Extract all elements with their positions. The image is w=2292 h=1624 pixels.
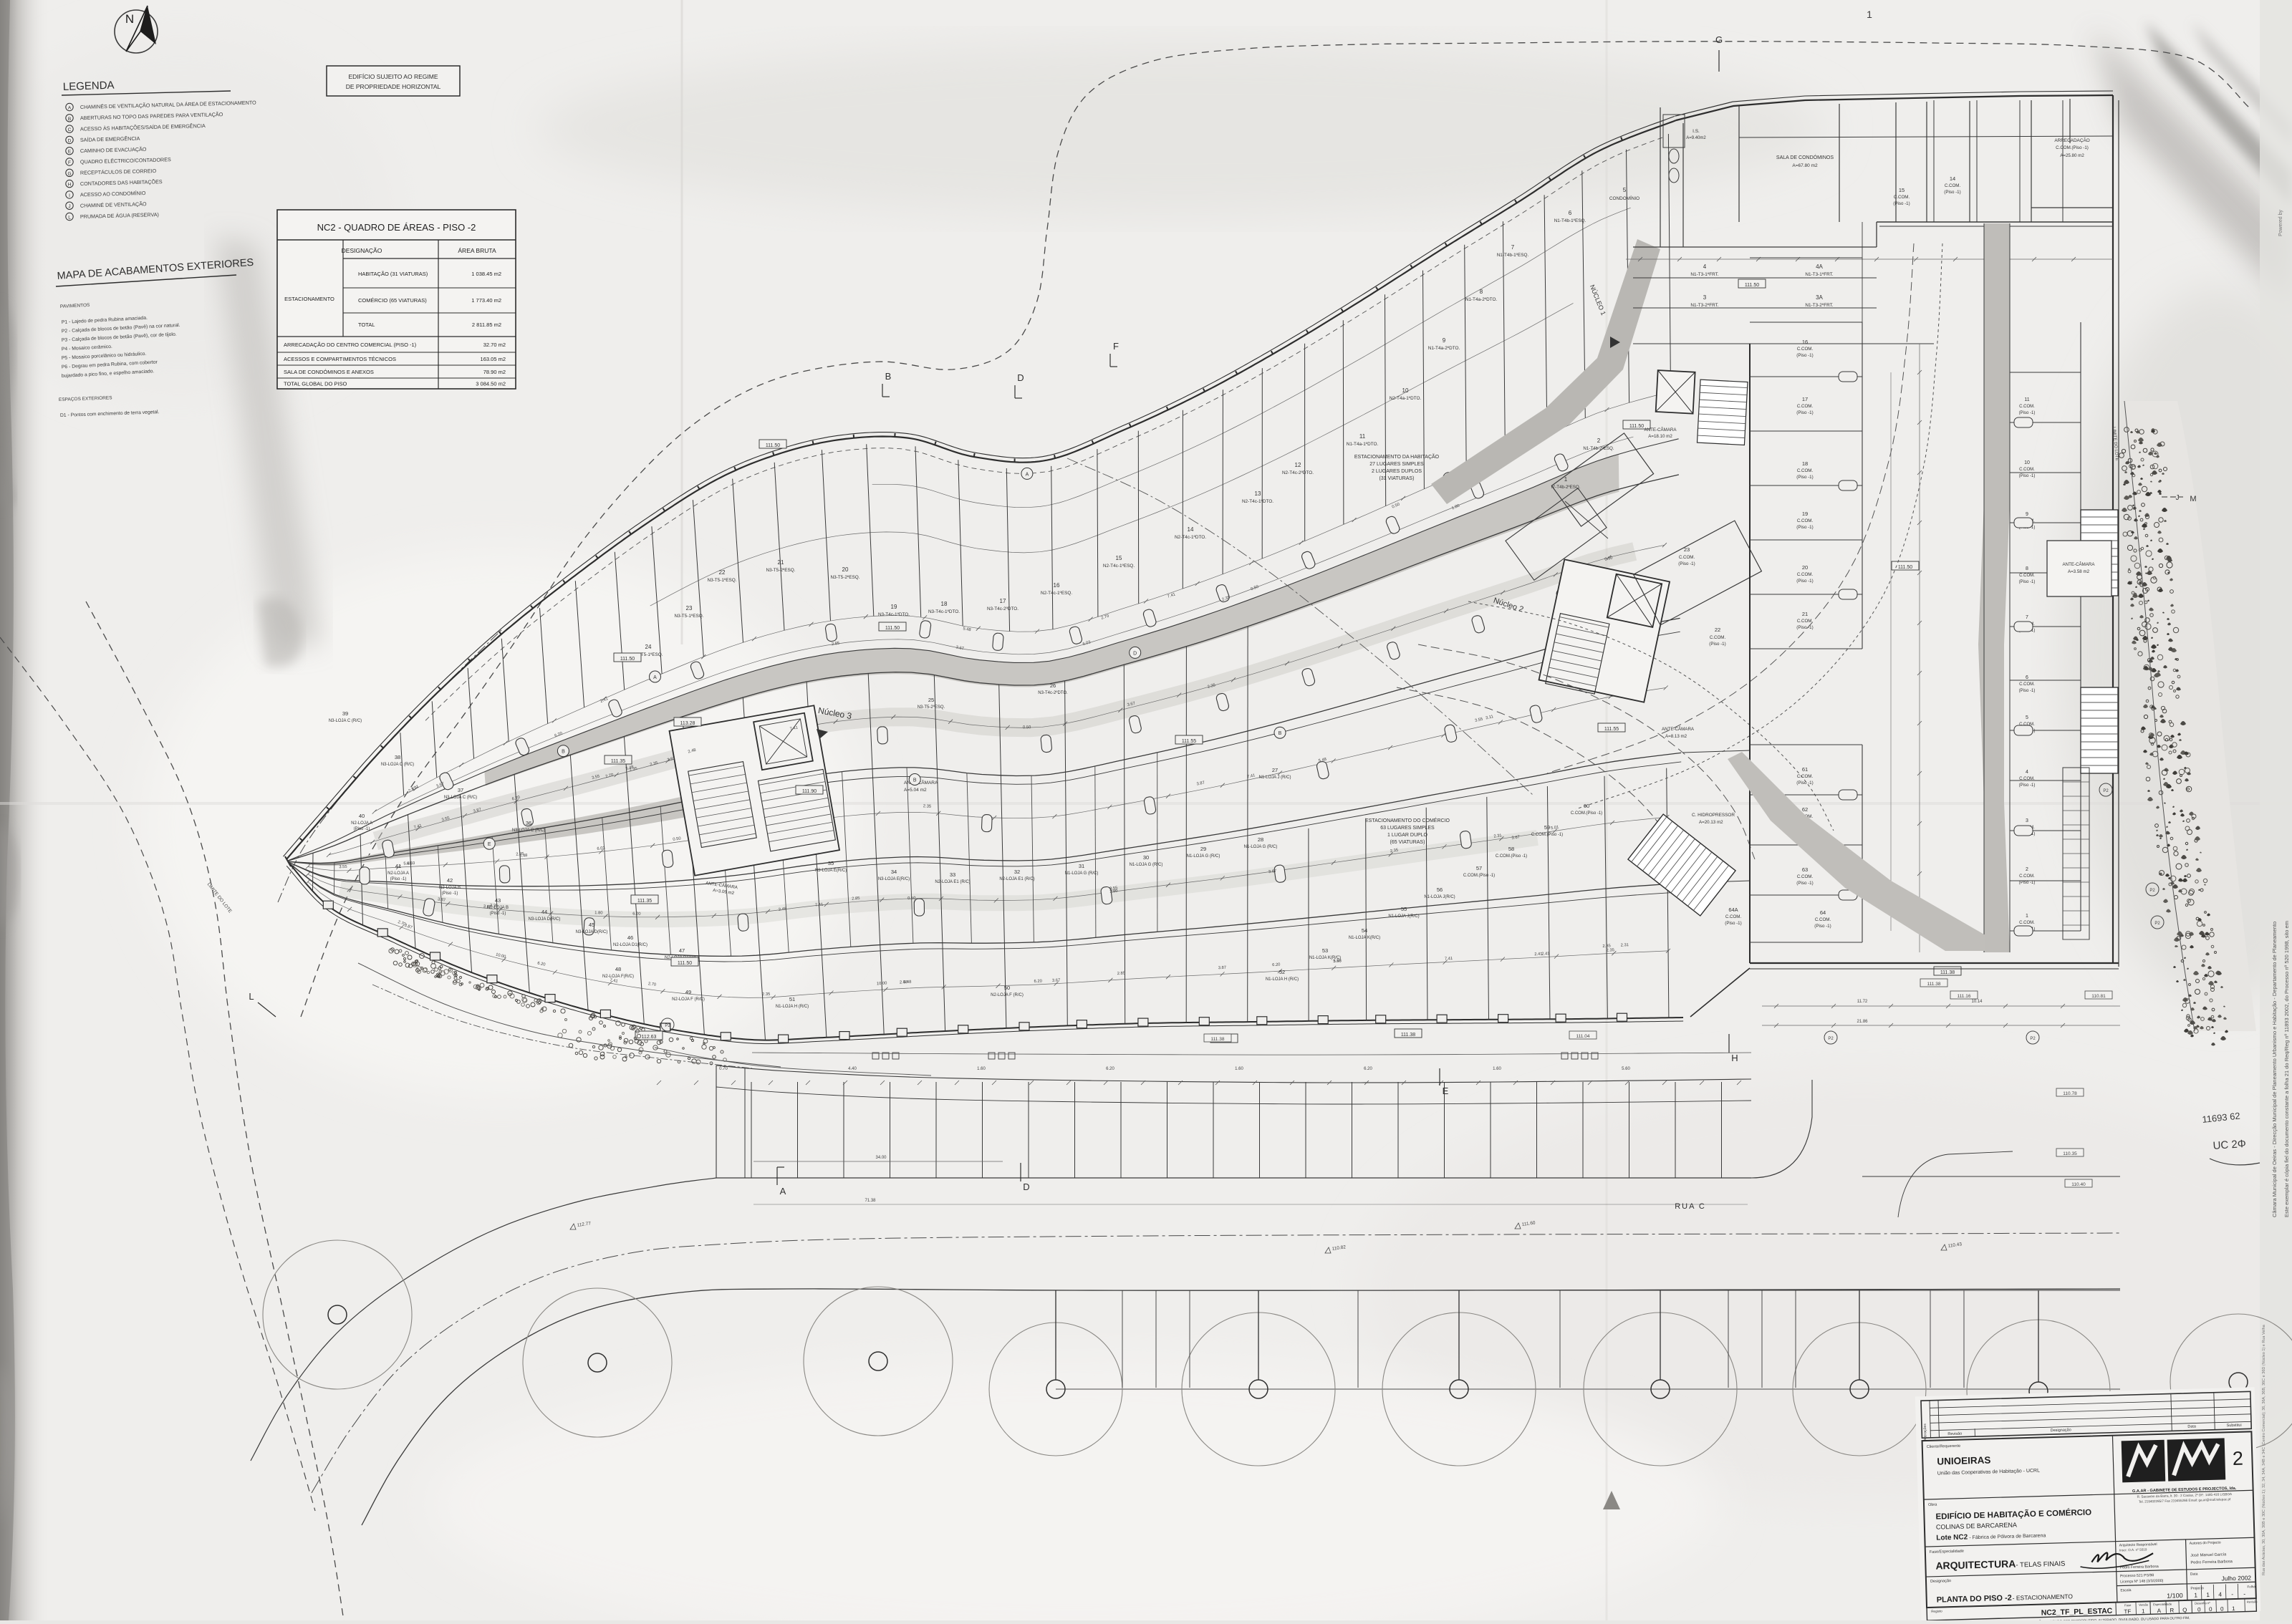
svg-text:A=3.58 m2: A=3.58 m2: [2068, 569, 2090, 574]
svg-text:B: B: [913, 778, 917, 783]
svg-text:6.20: 6.20: [632, 912, 640, 917]
svg-text:111.50: 111.50: [1629, 424, 1644, 429]
svg-text:111.38: 111.38: [1940, 970, 1955, 975]
svg-text:6.20: 6.20: [1272, 962, 1281, 967]
svg-text:B: B: [885, 371, 892, 382]
svg-text:6.20: 6.20: [1106, 1067, 1114, 1071]
svg-text:8: 8: [2026, 566, 2028, 571]
svg-text:111.04: 111.04: [1576, 1034, 1590, 1039]
svg-text:N2-T4c-2ºDTO.: N2-T4c-2ºDTO.: [1282, 470, 1314, 475]
svg-text:N3-LOJA E(R/C): N3-LOJA E(R/C): [878, 877, 910, 881]
svg-text:2.35: 2.35: [923, 804, 932, 809]
svg-text:4.40: 4.40: [848, 1067, 857, 1071]
svg-text:C: C: [68, 127, 72, 132]
svg-text:22: 22: [719, 569, 726, 576]
svg-text:L: L: [68, 216, 71, 221]
svg-text:111.16: 111.16: [1958, 994, 1971, 999]
svg-text:6.20: 6.20: [1364, 1067, 1372, 1071]
svg-text:22: 22: [1715, 627, 1720, 633]
svg-text:10: 10: [2024, 460, 2030, 465]
svg-text:Folha: Folha: [2247, 1585, 2255, 1588]
svg-text:63: 63: [1802, 866, 1808, 873]
svg-text:N2-LOJA F (R/C): N2-LOJA F (R/C): [991, 993, 1024, 997]
svg-text:27: 27: [1272, 767, 1278, 773]
svg-text:163.05 m2: 163.05 m2: [481, 356, 506, 362]
svg-text:D: D: [68, 138, 72, 143]
svg-text:J: J: [2176, 494, 2180, 502]
svg-text:36: 36: [526, 820, 531, 826]
svg-text:10.00: 10.00: [877, 981, 887, 986]
svg-text:P2: P2: [2103, 789, 2109, 793]
svg-text:C.COM.: C.COM.: [1815, 917, 1831, 922]
svg-text:C.COM.: C.COM.: [1797, 347, 1814, 352]
svg-text:C.COM.: C.COM.: [1797, 518, 1814, 523]
svg-text:53: 53: [1322, 947, 1328, 954]
svg-text:C.COM.: C.COM.: [2019, 574, 2035, 578]
svg-text:SALA DE CONDÓMINOS: SALA DE CONDÓMINOS: [1776, 154, 1834, 160]
svg-text:4A: 4A: [1816, 264, 1823, 270]
svg-text:10.14: 10.14: [1971, 1000, 1983, 1004]
svg-text:N2-LOJA A: N2-LOJA A: [351, 821, 372, 826]
svg-text:15: 15: [1116, 555, 1122, 561]
svg-text:C.COM.: C.COM.: [2019, 405, 2035, 409]
svg-text:1.80: 1.80: [594, 911, 603, 915]
svg-text:N2-LOJA F(R/C): N2-LOJA F(R/C): [602, 975, 634, 979]
svg-text:ACESSOS E COMPARTIMENTOS TÉCNI: ACESSOS E COMPARTIMENTOS TÉCNICOS: [284, 356, 396, 362]
svg-text:Lote NC2: Lote NC2: [1936, 1533, 1968, 1542]
svg-text:N3-T4c-2ºDTO.: N3-T4c-2ºDTO.: [987, 606, 1019, 612]
svg-text:24: 24: [645, 644, 652, 650]
svg-text:38: 38: [395, 754, 400, 760]
svg-text:N1-T4b-1ºESQ.: N1-T4b-1ºESQ.: [1497, 253, 1529, 258]
svg-text:0: 0: [2209, 1606, 2212, 1613]
svg-text:Substitui: Substitui: [2226, 1424, 2241, 1429]
svg-text:111.50: 111.50: [1745, 283, 1759, 288]
svg-text:C.COM.: C.COM.: [1797, 774, 1814, 779]
svg-text:N3-LOJA E(R/C): N3-LOJA E(R/C): [815, 869, 847, 873]
svg-text:2.85: 2.85: [852, 896, 860, 902]
svg-text:112.63: 112.63: [642, 1035, 657, 1040]
svg-text:2.35: 2.35: [762, 992, 771, 997]
svg-text:B: B: [1279, 731, 1282, 736]
svg-text:C.COM.(Piso -1): C.COM.(Piso -1): [1531, 833, 1563, 837]
svg-text:N1-T4a-1ºDTO.: N1-T4a-1ºDTO.: [1347, 442, 1379, 447]
svg-text:(Piso -1): (Piso -1): [354, 827, 370, 831]
svg-text:(31 VIATURAS): (31 VIATURAS): [1379, 476, 1415, 481]
svg-text:1.60: 1.60: [1493, 1067, 1501, 1071]
svg-text:0.70: 0.70: [719, 1067, 728, 1071]
svg-text:42: 42: [447, 877, 453, 884]
svg-text:3 084.50 m2: 3 084.50 m2: [476, 381, 506, 387]
svg-text:Versão: Versão: [2139, 1603, 2149, 1606]
svg-text:2.85: 2.85: [1117, 971, 1126, 976]
svg-text:2.41: 2.41: [1541, 952, 1550, 957]
svg-text:(Piso -1): (Piso -1): [1725, 921, 1741, 926]
svg-text:DESIGNAÇÃO: DESIGNAÇÃO: [342, 247, 382, 254]
svg-text:G: G: [1715, 34, 1723, 45]
svg-text:17: 17: [1802, 396, 1808, 402]
svg-text:1: 1: [1867, 9, 1872, 20]
svg-text:Revisão: Revisão: [1947, 1432, 1962, 1437]
svg-text:SALA DE CONDÓMINOS E ANEXOS: SALA DE CONDÓMINOS E ANEXOS: [284, 369, 374, 375]
svg-text:TOTAL GLOBAL DO PISO: TOTAL GLOBAL DO PISO: [284, 381, 347, 387]
svg-text:E: E: [488, 842, 491, 847]
svg-text:A: A: [1026, 472, 1029, 477]
svg-text:C.COM.(Piso -1): C.COM.(Piso -1): [1496, 854, 1527, 859]
svg-text:3A: 3A: [1816, 294, 1823, 301]
svg-text:COMÉRCIO (65 VIATURAS): COMÉRCIO (65 VIATURAS): [358, 297, 427, 304]
svg-text:Desenho nº: Desenho nº: [2195, 1601, 2210, 1605]
svg-text:N3-LOJA C (R/C): N3-LOJA C (R/C): [329, 719, 362, 723]
svg-text:(Piso -1): (Piso -1): [1796, 353, 1813, 358]
svg-text:N3-T5-1ºESQ.: N3-T5-1ºESQ.: [707, 578, 736, 583]
svg-text:ARQUITECTURA: ARQUITECTURA: [1935, 1558, 2016, 1572]
svg-text:Designação: Designação: [1930, 1579, 1951, 1584]
svg-text:N2-LOJA F (R/C): N2-LOJA F (R/C): [672, 997, 705, 1002]
svg-text:21: 21: [778, 559, 784, 566]
svg-text:7.41: 7.41: [815, 903, 824, 908]
svg-text:N2-T4c-1ºESQ.: N2-T4c-1ºESQ.: [1103, 564, 1135, 569]
svg-text:17: 17: [1000, 598, 1006, 604]
svg-text:Este exemplar é cópia fiel do: Este exemplar é cópia fiel do documento …: [2283, 921, 2290, 1217]
svg-text:4: 4: [2218, 1591, 2222, 1598]
svg-text:EDIFÍCIO SUJEITO AO REGIME: EDIFÍCIO SUJEITO AO REGIME: [348, 73, 438, 80]
svg-text:L: L: [249, 991, 254, 1002]
svg-text:8: 8: [1480, 289, 1483, 295]
svg-text:N1-T3-1ºFRT.: N1-T3-1ºFRT.: [1805, 272, 1833, 277]
svg-text:(Piso -1): (Piso -1): [2019, 474, 2036, 478]
svg-text:59: 59: [1544, 824, 1550, 831]
svg-text:A=20.13 m2: A=20.13 m2: [1699, 820, 1723, 825]
svg-text:HABITAÇÃO (31 VIATURAS): HABITAÇÃO (31 VIATURAS): [358, 271, 428, 277]
svg-text:N2-LOJA B: N2-LOJA B: [439, 886, 461, 890]
svg-text:B: B: [68, 117, 71, 122]
svg-text:20: 20: [842, 566, 849, 573]
svg-text:J: J: [68, 204, 70, 209]
svg-text:Especialidade: Especialidade: [2153, 1602, 2172, 1606]
svg-text:1 LUGAR DUPLO: 1 LUGAR DUPLO: [1387, 833, 1428, 838]
svg-text:110.78: 110.78: [2063, 1091, 2077, 1096]
svg-text:3: 3: [1703, 294, 1707, 301]
svg-text:(Piso -1): (Piso -1): [2019, 881, 2036, 885]
svg-text:-: -: [2243, 1590, 2245, 1598]
svg-text:20: 20: [1802, 564, 1808, 571]
svg-text:Q: Q: [2182, 1607, 2187, 1613]
svg-text:23: 23: [1684, 546, 1690, 553]
svg-text:C.COM.: C.COM.: [1797, 874, 1814, 879]
svg-text:N2-LOJA A: N2-LOJA A: [387, 871, 409, 876]
svg-text:12: 12: [1295, 462, 1301, 468]
svg-text:A=18.10 m2: A=18.10 m2: [1648, 434, 1672, 439]
svg-text:2 LUGARES DUPLOS: 2 LUGARES DUPLOS: [1372, 469, 1422, 474]
svg-text:25: 25: [928, 697, 934, 703]
svg-text:14: 14: [1188, 526, 1194, 533]
svg-text:N1-T4b-2ºESQ.: N1-T4b-2ºESQ.: [1583, 446, 1614, 451]
svg-text:4: 4: [2026, 770, 2028, 775]
svg-text:16: 16: [1054, 582, 1060, 589]
svg-text:N1-T4a-2ºDTO.: N1-T4a-2ºDTO.: [1465, 297, 1498, 302]
svg-text:26: 26: [1050, 682, 1056, 689]
svg-text:50: 50: [1004, 985, 1010, 991]
svg-text:ANTE-CÂMARA: ANTE-CÂMARA: [2062, 562, 2095, 567]
svg-text:N3-T4c-1ºDTO.: N3-T4c-1ºDTO.: [928, 609, 960, 614]
svg-text:57: 57: [1476, 865, 1482, 871]
svg-text:(Piso -1): (Piso -1): [442, 891, 458, 896]
svg-text:111.50: 111.50: [678, 961, 692, 966]
svg-text:14: 14: [1950, 175, 1955, 182]
svg-text:N2-T4a-1ºDTO.: N2-T4a-1ºDTO.: [1390, 396, 1422, 401]
svg-text:P2: P2: [2154, 922, 2160, 926]
svg-text:C.COM.: C.COM.: [2019, 874, 2035, 879]
svg-text:Fase: Fase: [2124, 1603, 2132, 1607]
svg-text:N1-LOJA J (R/C): N1-LOJA J (R/C): [1258, 775, 1291, 780]
svg-text:111.38: 111.38: [1211, 1037, 1225, 1042]
svg-text:111.35: 111.35: [611, 759, 625, 764]
svg-text:6.20: 6.20: [1034, 980, 1042, 984]
svg-text:51: 51: [789, 996, 795, 1002]
svg-text:A: A: [780, 1186, 786, 1197]
svg-text:10: 10: [1402, 387, 1409, 394]
svg-text:5: 5: [1623, 187, 1627, 193]
svg-text:(Piso -1): (Piso -1): [1796, 780, 1813, 786]
svg-text:(Piso -1): (Piso -1): [490, 912, 506, 916]
svg-text:(Piso -1): (Piso -1): [390, 877, 407, 881]
svg-text:E: E: [1443, 1086, 1449, 1096]
svg-text:1: 1: [2142, 1608, 2145, 1615]
svg-text:(Piso -1): (Piso -1): [1796, 881, 1813, 886]
svg-text:Alterações: Alterações: [1923, 1424, 1928, 1441]
svg-text:A=67.80 m2: A=67.80 m2: [1792, 163, 1818, 168]
svg-text:(Piso -1): (Piso -1): [2019, 580, 2036, 584]
svg-text:4: 4: [1703, 264, 1707, 270]
svg-text:G: G: [67, 171, 71, 176]
svg-text:Escala: Escala: [2120, 1588, 2131, 1592]
svg-text:N3-LOJA D(R/C): N3-LOJA D(R/C): [529, 917, 561, 922]
svg-text:Rua das Acácias, 30, 30A, 30B: Rua das Acácias, 30, 30A, 30B e 30C (Núc…: [2262, 1324, 2266, 1575]
svg-text:N3-T5-2ºESQ.: N3-T5-2ºESQ.: [918, 705, 945, 710]
svg-text:(Piso -1): (Piso -1): [2019, 689, 2036, 693]
svg-text:6.03: 6.03: [407, 861, 415, 866]
svg-text:D: D: [1023, 1181, 1029, 1192]
svg-text:N1-LOJA H (R/C): N1-LOJA H (R/C): [1266, 977, 1299, 982]
svg-text:1: 1: [2232, 1605, 2235, 1612]
svg-text:(Piso -1): (Piso -1): [1796, 525, 1813, 530]
svg-text:33: 33: [950, 871, 955, 878]
svg-text:Data: Data: [2187, 1424, 2197, 1429]
svg-text:11.72: 11.72: [1857, 1000, 1868, 1004]
svg-text:1 038.45 m2: 1 038.45 m2: [471, 271, 501, 277]
svg-text:(Piso -1): (Piso -1): [1796, 625, 1813, 630]
svg-text:111.38: 111.38: [1927, 982, 1941, 987]
svg-text:2: 2: [2026, 867, 2028, 872]
svg-text:71.38: 71.38: [865, 1199, 876, 1203]
svg-text:F: F: [1113, 341, 1119, 352]
svg-text:- TELAS FINAIS: - TELAS FINAIS: [2016, 1560, 2065, 1570]
svg-text:9: 9: [2026, 512, 2028, 517]
svg-text:ARRECADAÇÃO: ARRECADAÇÃO: [2054, 137, 2089, 143]
svg-text:3.55: 3.55: [1333, 959, 1342, 964]
svg-text:37: 37: [458, 787, 463, 793]
svg-text:Julho 2002: Julho 2002: [2221, 1574, 2251, 1582]
svg-text:UNIOEIRAS: UNIOEIRAS: [1937, 1454, 1990, 1466]
svg-text:D: D: [1133, 651, 1137, 656]
svg-text:41: 41: [395, 863, 401, 869]
svg-text:Designação: Designação: [2051, 1428, 2071, 1433]
svg-text:58: 58: [1508, 846, 1514, 852]
svg-text:64A: 64A: [1728, 907, 1738, 913]
svg-text:C.COM.: C.COM.: [2019, 468, 2035, 472]
svg-text:N3-T5-2ºESQ.: N3-T5-2ºESQ.: [766, 568, 795, 573]
svg-text:(Piso -1): (Piso -1): [1796, 475, 1813, 480]
svg-text:(Piso -1): (Piso -1): [1678, 561, 1695, 566]
svg-text:C.COM.: C.COM.: [1797, 619, 1814, 624]
svg-text:RUA C: RUA C: [1675, 1202, 1706, 1211]
svg-text:1: 1: [1564, 476, 1568, 483]
svg-text:1.60: 1.60: [977, 1067, 986, 1071]
svg-text:A: A: [653, 675, 657, 680]
svg-text:C.COM.: C.COM.: [1679, 555, 1695, 560]
svg-text:A=9.40m2: A=9.40m2: [1686, 136, 1706, 140]
svg-text:34.00: 34.00: [875, 1156, 887, 1160]
svg-text:N2-T4c-1ºDTO.: N2-T4c-1ºDTO.: [1242, 499, 1273, 504]
svg-text:111.55: 111.55: [1182, 739, 1196, 744]
svg-text:2.85: 2.85: [516, 852, 524, 857]
svg-text:78.90 m2: 78.90 m2: [483, 369, 506, 375]
svg-text:N3-T5-1ºESQ.: N3-T5-1ºESQ.: [674, 614, 703, 619]
svg-text:48: 48: [615, 966, 621, 972]
svg-text:34: 34: [891, 869, 897, 875]
svg-text:1: 1: [2026, 914, 2028, 919]
svg-text:23: 23: [686, 605, 693, 612]
svg-text:Obra: Obra: [1928, 1503, 1937, 1507]
svg-text:47: 47: [679, 947, 685, 954]
svg-text:1: 1: [2206, 1591, 2210, 1598]
svg-text:56: 56: [1437, 886, 1443, 893]
svg-text:3: 3: [2026, 818, 2028, 823]
svg-text:Câmara Municipal de Oeiras - D: Câmara Municipal de Oeiras - Direcção Mu…: [2271, 922, 2278, 1217]
svg-text:16: 16: [1802, 339, 1808, 345]
svg-text:C.COM.(Piso -1): C.COM.(Piso -1): [1571, 811, 1602, 816]
svg-text:N1-LOJA G (R/C): N1-LOJA G (R/C): [1130, 863, 1163, 867]
svg-text:ARRECADAÇÃO DO CENTRO COMERCIA: ARRECADAÇÃO DO CENTRO COMERCIAL (PISO -1…: [284, 342, 417, 348]
svg-text:A: A: [2157, 1608, 2162, 1614]
svg-text:18: 18: [1802, 460, 1808, 467]
svg-text:39: 39: [342, 710, 348, 717]
svg-text:(Piso -1): (Piso -1): [2019, 783, 2036, 788]
svg-text:P2: P2: [1828, 1037, 1834, 1041]
svg-text:P2: P2: [2149, 889, 2155, 893]
svg-text:52: 52: [1279, 969, 1285, 975]
svg-text:N1-LOJA K(R/C): N1-LOJA K(R/C): [1349, 936, 1380, 940]
svg-text:110.81: 110.81: [2091, 994, 2106, 999]
svg-text:32: 32: [1014, 869, 1020, 875]
svg-text:A=25.80 m2: A=25.80 m2: [2060, 153, 2084, 158]
svg-text:N1-LOJA G (R/C): N1-LOJA G (R/C): [1065, 871, 1099, 876]
svg-text:R: R: [2170, 1607, 2174, 1613]
svg-text:6: 6: [1569, 210, 1572, 216]
svg-text:27 LUGARES SIMPLES: 27 LUGARES SIMPLES: [1369, 462, 1424, 467]
svg-text:2: 2: [2232, 1448, 2243, 1469]
svg-text:N1-LOJA H (R/C): N1-LOJA H (R/C): [776, 1005, 809, 1009]
svg-text:28: 28: [1258, 836, 1263, 843]
svg-text:UC 2Φ: UC 2Φ: [2212, 1138, 2246, 1152]
svg-text:N2-LOJA E1 (R/C): N2-LOJA E1 (R/C): [999, 877, 1034, 881]
svg-text:19: 19: [891, 604, 897, 610]
svg-text:3.67: 3.67: [1052, 978, 1061, 983]
svg-text:P2: P2: [665, 1024, 670, 1028]
svg-text:43: 43: [495, 897, 501, 904]
svg-text:2.35: 2.35: [490, 904, 499, 909]
svg-text:111.50: 111.50: [1898, 565, 1912, 570]
svg-text:(Piso -1): (Piso -1): [1796, 410, 1813, 415]
svg-text:Revisão: Revisão: [2247, 1600, 2258, 1603]
svg-text:6.03: 6.03: [597, 846, 605, 851]
svg-text:Autores do Projecto: Autores do Projecto: [2190, 1541, 2221, 1546]
svg-text:0: 0: [2197, 1606, 2201, 1613]
svg-text:1: 1: [2194, 1591, 2197, 1598]
svg-text:TF: TF: [2124, 1608, 2131, 1615]
svg-text:2: 2: [1597, 438, 1601, 444]
svg-text:C. HIDROPRESSOR: C. HIDROPRESSOR: [1692, 813, 1735, 818]
svg-text:1.60: 1.60: [1235, 1067, 1243, 1071]
svg-text:15: 15: [1899, 187, 1905, 193]
svg-text:54: 54: [1362, 927, 1367, 934]
svg-text:N1-T3-2ºFRT.: N1-T3-2ºFRT.: [1690, 303, 1718, 308]
svg-text:N3-LOJA C (R/C): N3-LOJA C (R/C): [381, 763, 414, 767]
svg-text:ESTACIONAMENTO DO COMÉRCIO: ESTACIONAMENTO DO COMÉRCIO: [1365, 817, 1450, 823]
svg-text:63 LUGARES SIMPLES: 63 LUGARES SIMPLES: [1380, 826, 1435, 831]
svg-text:C.COM.: C.COM.: [2019, 921, 2035, 925]
svg-text:C.COM.: C.COM.: [1945, 183, 1961, 188]
svg-text:110.35: 110.35: [2063, 1151, 2077, 1156]
svg-text:N3-T5-2ºESQ.: N3-T5-2ºESQ.: [830, 575, 860, 580]
svg-text:31: 31: [1079, 863, 1084, 869]
svg-text:C.COM.: C.COM.: [1894, 195, 1910, 200]
svg-text:11: 11: [2024, 397, 2029, 402]
svg-text:3.55: 3.55: [339, 865, 347, 869]
svg-text:0.50: 0.50: [1023, 725, 1031, 730]
svg-text:-: -: [2231, 1590, 2233, 1598]
svg-text:D: D: [1017, 372, 1024, 383]
svg-text:29: 29: [1200, 846, 1206, 852]
svg-text:110.40: 110.40: [2071, 1182, 2086, 1187]
svg-text:C.COM.: C.COM.: [2019, 777, 2035, 781]
svg-text:(Piso -1): (Piso -1): [2019, 411, 2036, 415]
svg-text:I.S.: I.S.: [1692, 129, 1700, 134]
svg-text:3.87: 3.87: [1218, 966, 1227, 971]
svg-text:21: 21: [1802, 611, 1808, 617]
svg-text:111.38: 111.38: [1401, 1033, 1415, 1038]
svg-text:111.50: 111.50: [766, 443, 780, 448]
svg-text:Powered by: Powered by: [2278, 210, 2283, 236]
svg-text:21.86: 21.86: [1857, 1020, 1868, 1024]
svg-text:13: 13: [1255, 490, 1261, 497]
svg-text:(Piso -1): (Piso -1): [1709, 642, 1725, 647]
svg-text:N1-LOJA G (R/C): N1-LOJA G (R/C): [1244, 845, 1278, 849]
svg-text:111.55: 111.55: [1604, 727, 1619, 732]
svg-text:111.50: 111.50: [885, 626, 900, 631]
svg-text:N3-LOJA C (R/C): N3-LOJA C (R/C): [444, 796, 477, 800]
svg-text:62: 62: [1802, 806, 1808, 813]
svg-text:2.31: 2.31: [1621, 943, 1629, 948]
svg-text:(65 VIATURAS): (65 VIATURAS): [1390, 840, 1425, 845]
svg-text:H: H: [1731, 1053, 1738, 1063]
svg-text:A=5.04 m2: A=5.04 m2: [904, 788, 927, 793]
svg-text:0.50: 0.50: [907, 896, 915, 901]
svg-text:44: 44: [541, 909, 547, 915]
svg-text:19: 19: [1802, 511, 1808, 517]
svg-text:5.48: 5.48: [903, 980, 912, 985]
